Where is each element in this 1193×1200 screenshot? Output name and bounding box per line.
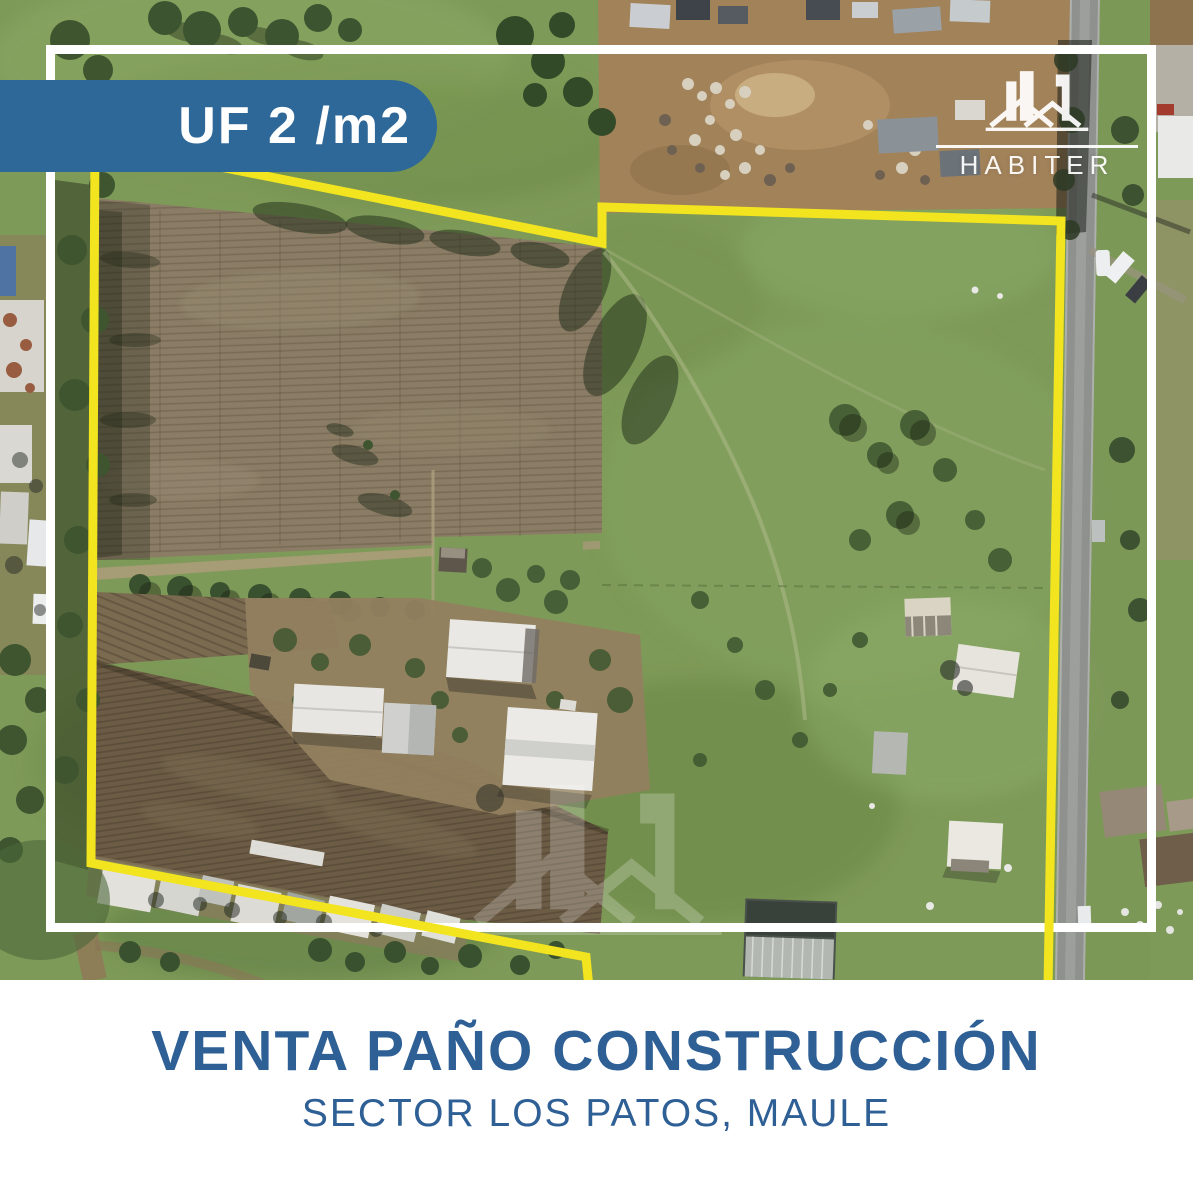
price-badge: UF 2 /m2 [0, 80, 437, 172]
listing-subtitle: SECTOR LOS PATOS, MAULE [0, 1094, 1193, 1135]
listing-poster: UF 2 /m2 HABITER VENTA PAÑO CONSTRUCCIÓN… [0, 0, 1193, 1200]
price-badge-label: UF 2 /m2 [178, 96, 411, 156]
listing-title: VENTA PAÑO CONSTRUCCIÓN [0, 1022, 1193, 1082]
brand-rule [936, 145, 1138, 148]
caption-band: VENTA PAÑO CONSTRUCCIÓN SECTOR LOS PATOS… [0, 980, 1193, 1200]
brand-logo: HABITER [932, 66, 1142, 181]
habiter-house-icon [977, 66, 1097, 143]
brand-wordmark: HABITER [932, 150, 1142, 181]
